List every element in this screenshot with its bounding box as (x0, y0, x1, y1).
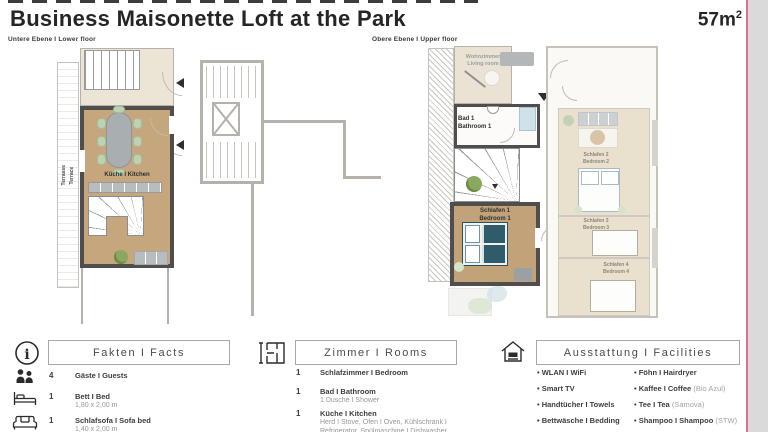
bed (578, 168, 620, 212)
chair (97, 136, 106, 147)
window-band (652, 120, 658, 166)
chair (133, 136, 142, 147)
sofa-icon (12, 414, 38, 430)
rooms-item-label: Küche I Kitchen (320, 409, 377, 418)
kitchen-label: Küche I Kitchen (84, 172, 170, 180)
facts-item-label: Bett I Bed (75, 392, 110, 401)
house-icon (499, 339, 527, 365)
svg-text:i: i (24, 347, 29, 363)
lower-floor-label: Untere Ebene I Lower floor (8, 36, 96, 43)
entry-stairs (84, 50, 140, 90)
shower (519, 107, 536, 131)
area-exponent: 2 (736, 9, 742, 21)
couch (500, 52, 534, 66)
floorplan-sheet: Business Maisonette Loft at the Park 57m… (0, 0, 768, 432)
building-outline-wall (343, 120, 346, 178)
stool (618, 206, 626, 214)
stairwell-steps (206, 142, 258, 178)
building-outline-wall (81, 268, 83, 324)
stool (574, 206, 582, 214)
plant (563, 115, 574, 126)
bedroom4-label: Schlafen 4 Bedroom 4 (586, 262, 646, 275)
entrance-arrow-icon (176, 78, 184, 88)
kitchen-counter (88, 182, 162, 193)
window-slit (535, 228, 540, 248)
upper-floor-label: Obere Ebene I Upper floor (372, 36, 458, 43)
garden-plant (468, 298, 492, 314)
building-outline-wall (343, 176, 381, 179)
floor-mat (514, 268, 532, 281)
rooms-qty: 1 (296, 368, 300, 377)
facility-item: WLAN I WiFi (537, 368, 586, 377)
facility-item: Kaffee I Coffee (Bio Azul) (634, 384, 725, 393)
bedroom2-label: Schlafen 2 Bedroom 2 (566, 152, 626, 165)
facts-item-sub: 1,80 x 2,00 m (75, 401, 117, 410)
building-outline-wall (251, 184, 254, 316)
facility-main: Shampoo I Shampoo (639, 416, 714, 425)
facts-item-label: Schlafsofa I Sofa bed (75, 416, 151, 425)
blanket (482, 245, 505, 263)
chair (133, 118, 142, 129)
round-rug (590, 130, 605, 145)
building-outline-wall (264, 120, 346, 123)
facility-item: Föhn I Hairdryer (634, 368, 697, 377)
facts-header: Fakten I Facts (48, 340, 230, 365)
viewer-gutter (748, 0, 768, 432)
clipped-text-above (8, 0, 478, 3)
double-bed (462, 222, 508, 266)
facts-qty: 1 (49, 416, 53, 425)
rooms-item-sub: Herd I Stove, Ofen I Oven, Kühlschrank I… (320, 418, 465, 432)
facility-item: Handtücher I Towels (537, 400, 615, 409)
info-icon: i (14, 340, 40, 366)
stair-direction-icon (492, 184, 498, 189)
blanket (482, 225, 505, 243)
facility-main: Föhn I Hairdryer (639, 368, 697, 377)
rug (484, 70, 500, 86)
guests-icon (14, 368, 36, 384)
rooms-item-sub: 1 Dusche I Shower (320, 396, 379, 405)
facts-item-label: Gäste I Guests (75, 371, 128, 380)
pillow (465, 225, 480, 243)
facility-item: Shampoo I Shampoo (STW) (634, 416, 737, 425)
rooms-qty: 1 (296, 409, 300, 418)
window-slit (80, 150, 85, 172)
interior-stairs-upper (454, 148, 520, 202)
rooms-header: Zimmer I Rooms (295, 340, 457, 365)
garden-chair (487, 286, 507, 302)
rooms-qty: 1 (296, 387, 300, 396)
chair (113, 106, 125, 113)
facility-item: Smart TV (537, 384, 575, 393)
floorplan-icon (257, 340, 287, 366)
rooms-item-label: Bad I Bathroom (320, 387, 376, 396)
bed (592, 230, 638, 256)
stool (454, 262, 464, 272)
bed (590, 280, 636, 312)
facility-note: (STW) (715, 416, 737, 425)
terrace-area: Terrasse Terrace (57, 62, 79, 288)
building-outline-wall (167, 268, 169, 324)
facilities-header: Ausstattung I Facilities (536, 340, 740, 365)
bed-half (465, 225, 505, 243)
elevator (212, 102, 240, 136)
facility-main: Tee I Tea (639, 400, 670, 409)
plant (466, 176, 482, 192)
pillow (601, 171, 619, 185)
bathroom-label: Bad 1 Bathroom 1 (458, 116, 498, 132)
chair (97, 118, 106, 129)
pillow (581, 171, 599, 185)
facility-note: (Bio Azul) (693, 384, 725, 393)
window-slit (169, 116, 174, 134)
facts-qty: 1 (49, 392, 53, 401)
dining-table (106, 112, 132, 168)
facts-qty: 4 (49, 371, 53, 380)
facility-item: Tee I Tea (Samova) (634, 400, 704, 409)
chair (133, 154, 142, 165)
area-value: 57m (698, 9, 736, 30)
terrace-label: Terrasse Terrace (60, 165, 76, 185)
rooms-item-label: Schlafzimmer I Bedroom (320, 368, 408, 377)
window-band (652, 228, 658, 268)
chair (97, 154, 106, 165)
facility-note: (Samova) (672, 400, 705, 409)
pillow (465, 245, 480, 263)
stair-landing (106, 216, 128, 236)
stairwell-steps (206, 66, 258, 98)
entrance-arrow-icon (176, 140, 184, 150)
page-title: Business Maisonette Loft at the Park (10, 6, 406, 32)
facility-item: Bettwäsche I Bedding (537, 416, 620, 425)
bed-half (465, 245, 505, 263)
plant (114, 250, 128, 264)
area-text: 57m2 (692, 9, 742, 31)
bed-icon (12, 390, 38, 407)
facts-item-sub: 1,40 x 2,00 m (75, 425, 117, 432)
sofa (134, 251, 168, 265)
wardrobe (578, 112, 618, 126)
facility-main: Kaffee I Coffee (639, 384, 692, 393)
